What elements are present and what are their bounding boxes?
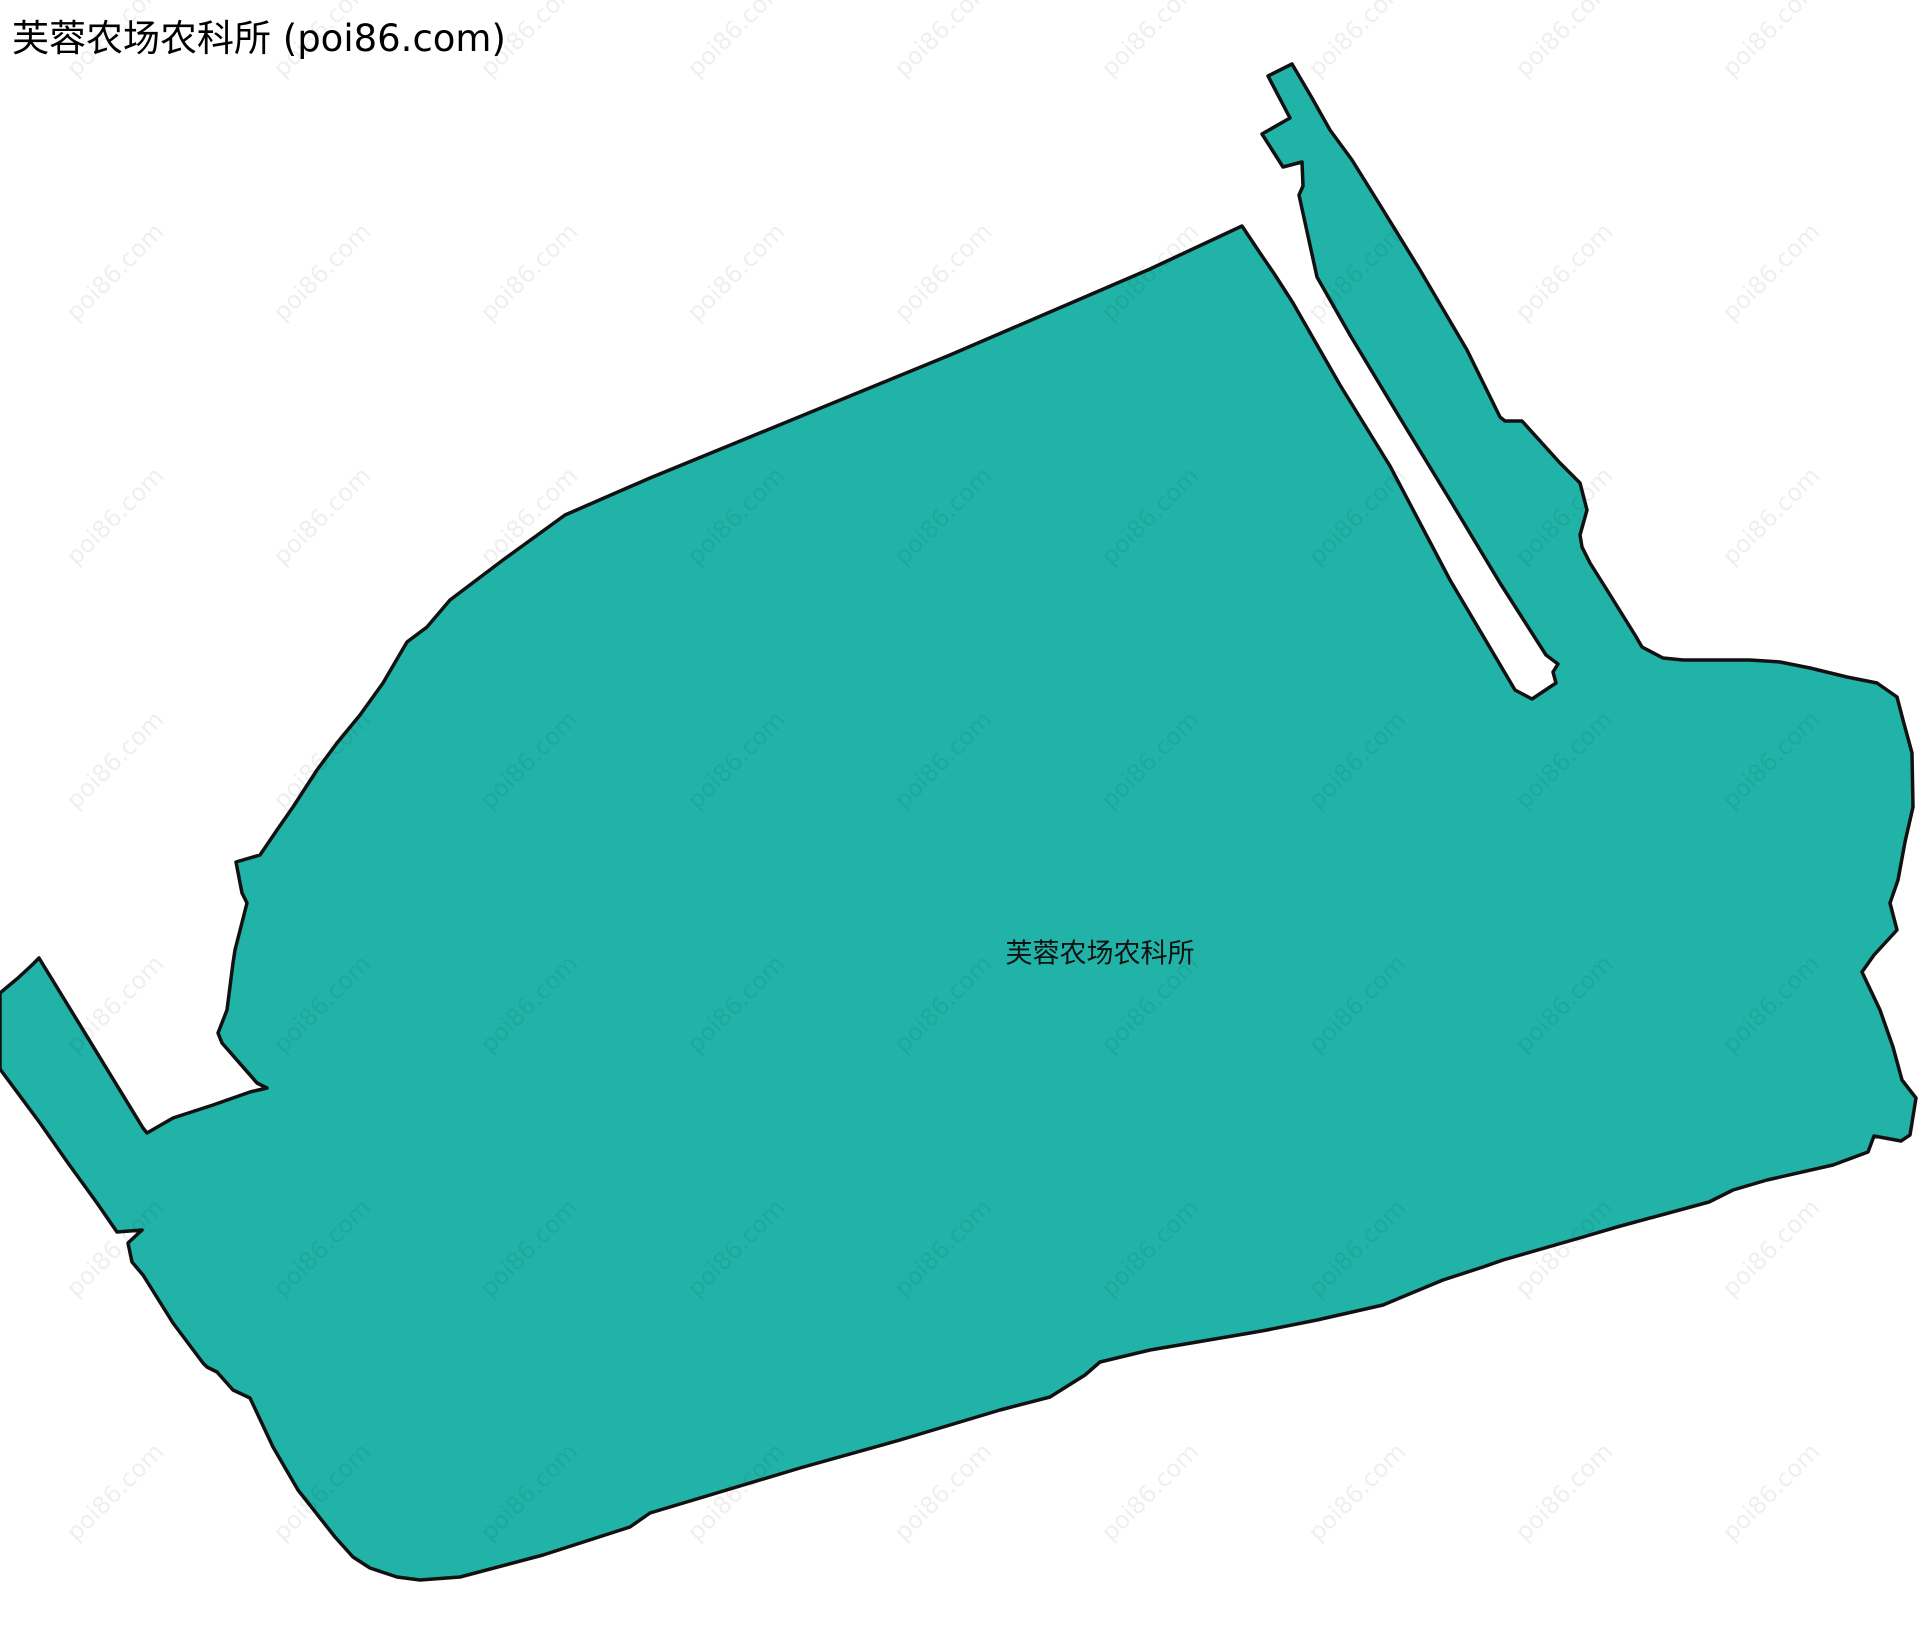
- map-canvas: poi86.compoi86.compoi86.compoi86.compoi8…: [0, 0, 1920, 1644]
- map-boundary-svg: [0, 0, 1920, 1644]
- region-boundary-polygon: [0, 64, 1916, 1580]
- page-title: 芙蓉农场农科所 (poi86.com): [12, 8, 506, 62]
- region-label: 芙蓉农场农科所: [1006, 932, 1195, 971]
